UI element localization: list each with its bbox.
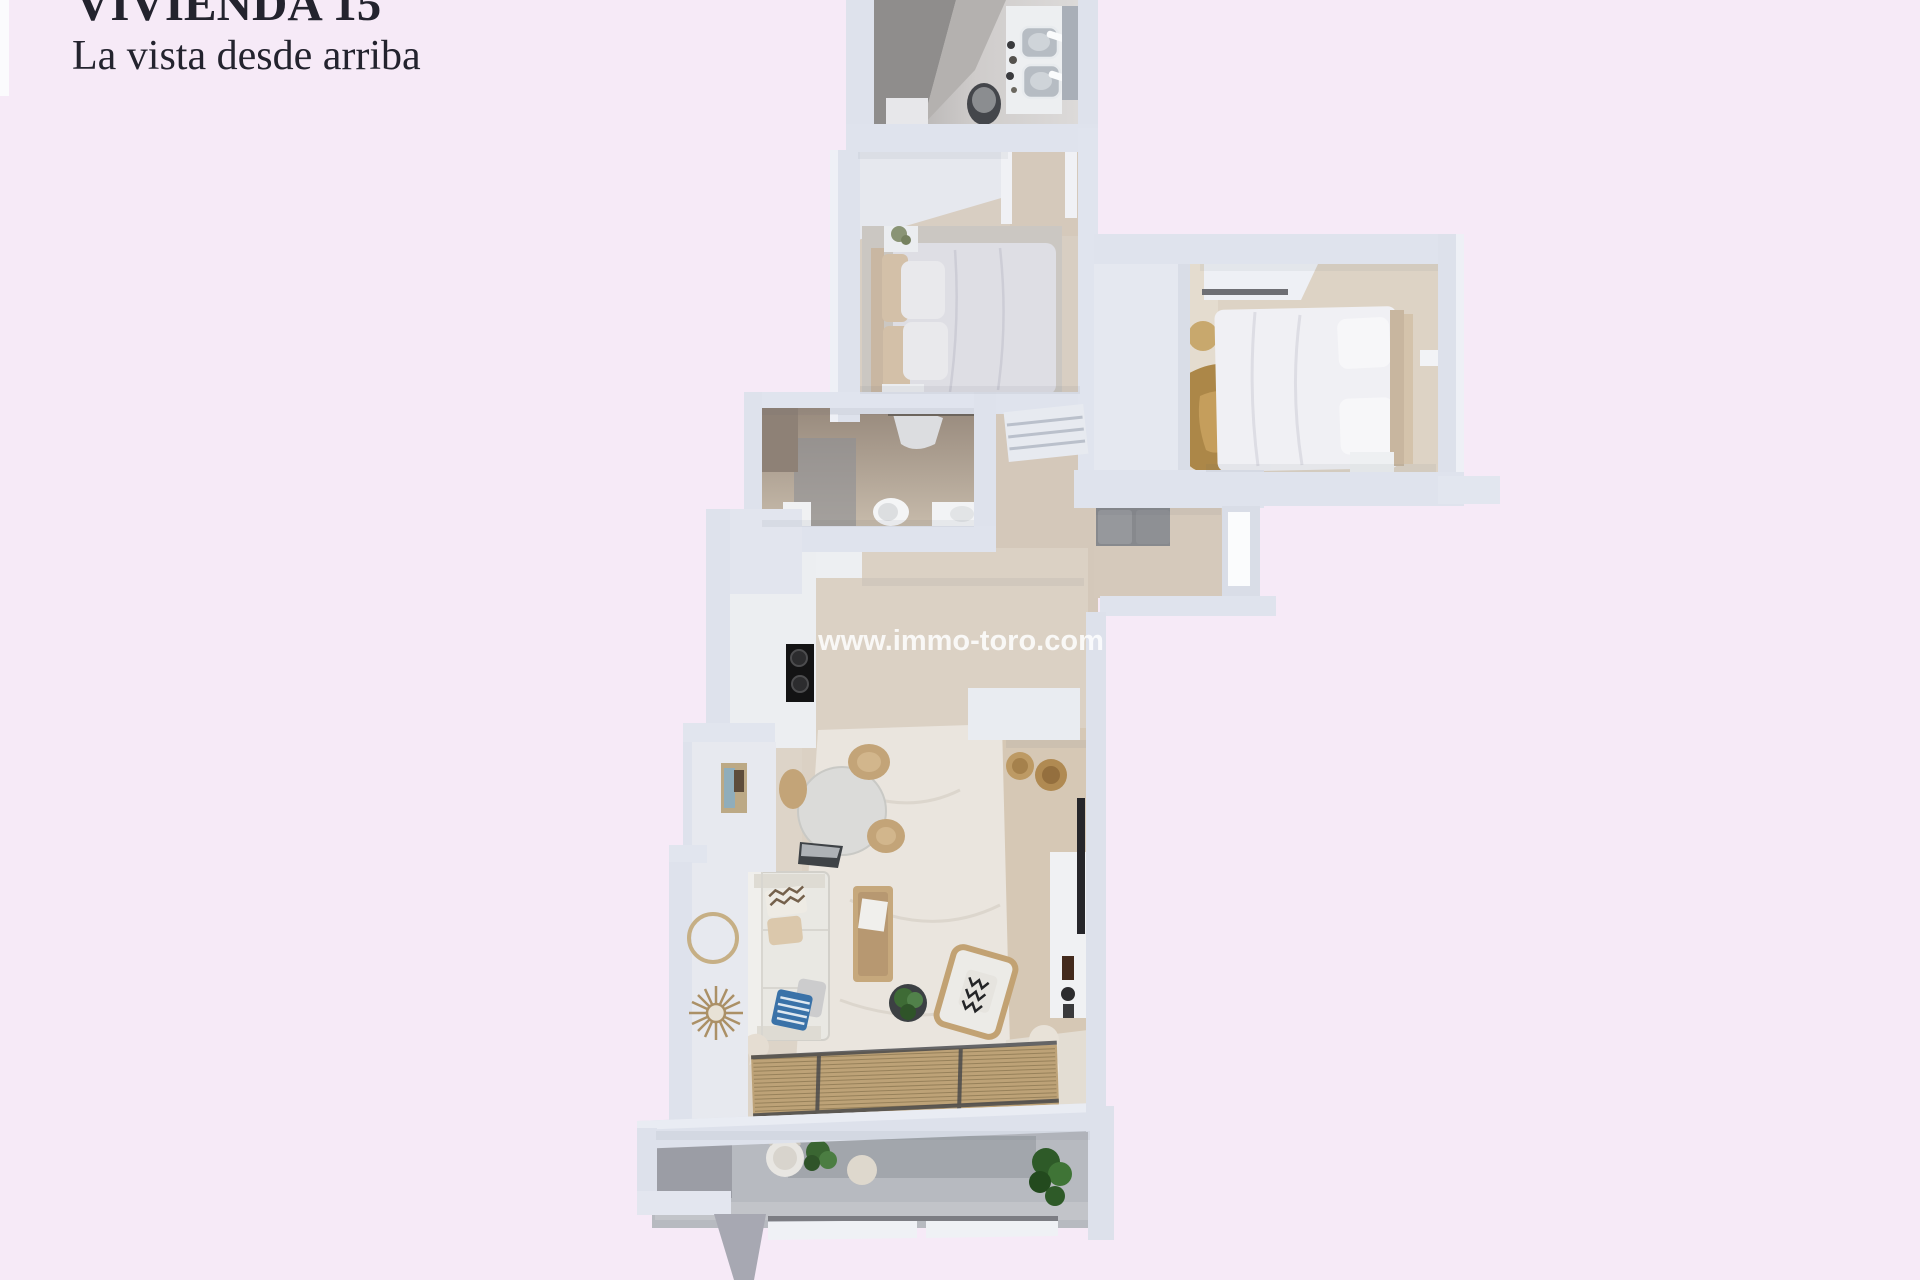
svg-text:VIVIENDA 15: VIVIENDA 15 <box>75 0 381 31</box>
svg-text:La vista desde arriba: La vista desde arriba <box>72 33 421 79</box>
svg-text:www.immo-toro.com: www.immo-toro.com <box>817 625 1104 657</box>
